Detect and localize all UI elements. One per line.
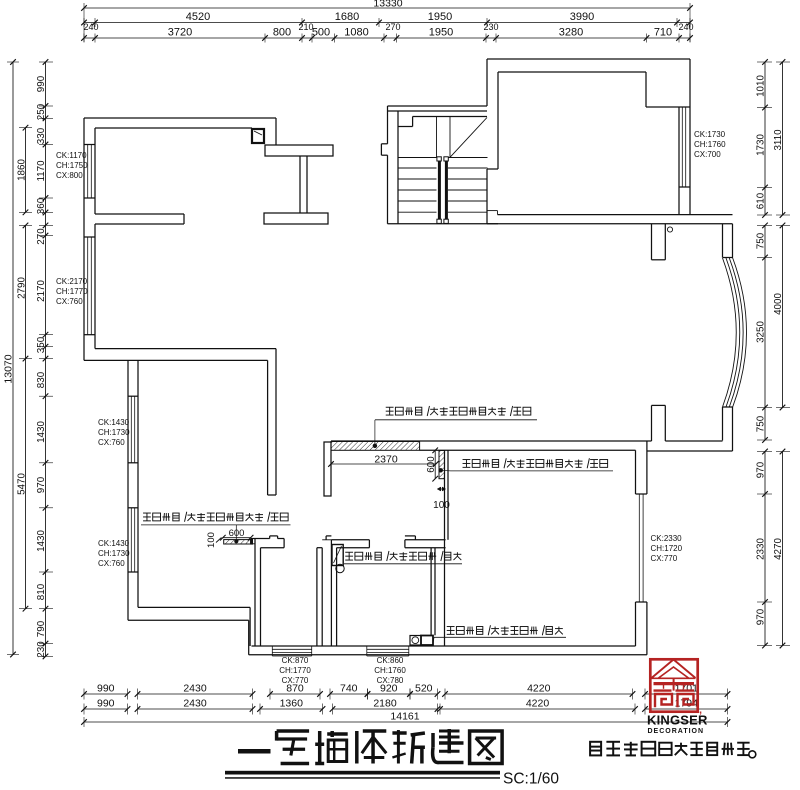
svg-text:CH:1750: CH:1750 [56, 161, 88, 170]
svg-text:1010: 1010 [756, 75, 767, 97]
svg-text:270: 270 [36, 228, 47, 245]
svg-text:800: 800 [273, 27, 291, 39]
svg-text:CK:2330: CK:2330 [651, 534, 683, 543]
svg-text:1170: 1170 [36, 160, 47, 182]
svg-text:810: 810 [36, 583, 47, 600]
svg-text:500: 500 [312, 27, 330, 39]
svg-text:4220: 4220 [526, 698, 550, 710]
svg-text:CK:2170: CK:2170 [56, 277, 88, 286]
svg-text:970: 970 [756, 461, 767, 478]
svg-text:3250: 3250 [756, 321, 767, 343]
svg-text:1360: 1360 [280, 698, 304, 710]
svg-text:1680: 1680 [335, 11, 359, 23]
svg-text:990: 990 [97, 683, 115, 695]
svg-text:CK:1430: CK:1430 [98, 539, 130, 548]
svg-text:230: 230 [36, 641, 47, 658]
svg-text:710: 710 [654, 27, 672, 39]
svg-text:2430: 2430 [183, 698, 207, 710]
svg-text:600: 600 [426, 456, 437, 473]
svg-text:CX:770: CX:770 [651, 554, 678, 563]
svg-text:CK:860: CK:860 [377, 656, 404, 665]
svg-text:990: 990 [36, 75, 47, 92]
svg-text:4000: 4000 [773, 293, 784, 315]
svg-text:1860: 1860 [17, 159, 28, 181]
svg-text:2170: 2170 [36, 280, 47, 302]
svg-text:2370: 2370 [374, 454, 398, 466]
svg-text:4220: 4220 [527, 683, 551, 695]
svg-text:2430: 2430 [183, 683, 207, 695]
svg-text:CH:1760: CH:1760 [374, 666, 406, 675]
svg-text:CK:1430: CK:1430 [98, 418, 130, 427]
svg-text:100: 100 [206, 532, 217, 548]
svg-text:14161: 14161 [390, 711, 419, 723]
svg-text:3990: 3990 [570, 11, 594, 23]
svg-text:CX:760: CX:760 [98, 438, 125, 447]
svg-text:CK:870: CK:870 [282, 656, 309, 665]
svg-text:360: 360 [36, 197, 47, 214]
svg-text:2180: 2180 [373, 698, 397, 710]
svg-text:990: 990 [97, 698, 115, 710]
svg-text:790: 790 [36, 620, 47, 637]
svg-text:CX:780: CX:780 [377, 676, 404, 685]
svg-text:’: ’ [699, 710, 702, 722]
svg-text:970: 970 [36, 476, 47, 493]
svg-text:2790: 2790 [17, 277, 28, 299]
svg-text:4520: 4520 [186, 11, 210, 23]
svg-text:CX:760: CX:760 [98, 559, 125, 568]
svg-text:240: 240 [83, 22, 98, 32]
svg-text:DECORATION: DECORATION [648, 728, 705, 735]
svg-text:1080: 1080 [344, 27, 368, 39]
svg-text:740: 740 [340, 683, 358, 695]
svg-text:CX:800: CX:800 [56, 171, 83, 180]
svg-text:250: 250 [36, 103, 47, 120]
svg-text:1430: 1430 [36, 421, 47, 443]
svg-text:CH:1770: CH:1770 [56, 287, 88, 296]
svg-text:270: 270 [385, 22, 400, 32]
svg-text:13070: 13070 [3, 354, 15, 383]
svg-text:SC:1/60: SC:1/60 [503, 771, 559, 788]
svg-text:230: 230 [483, 22, 498, 32]
svg-text:610: 610 [756, 192, 767, 209]
svg-text:CH:1760: CH:1760 [694, 140, 726, 149]
svg-text:520: 520 [415, 683, 433, 695]
svg-text:750: 750 [756, 232, 767, 249]
svg-text:1730: 1730 [756, 134, 767, 156]
svg-text:CH:1720: CH:1720 [651, 544, 683, 553]
svg-text:1950: 1950 [428, 11, 452, 23]
svg-text:1430: 1430 [36, 530, 47, 552]
svg-text:4270: 4270 [773, 538, 784, 560]
svg-text:2330: 2330 [756, 538, 767, 560]
svg-text:350: 350 [36, 336, 47, 353]
svg-text:CX:770: CX:770 [282, 676, 309, 685]
svg-text:750: 750 [756, 415, 767, 432]
svg-text:3280: 3280 [559, 27, 583, 39]
svg-text:CH:1730: CH:1730 [98, 428, 130, 437]
svg-text:CH:1730: CH:1730 [98, 549, 130, 558]
svg-text:970: 970 [756, 608, 767, 625]
svg-text:330: 330 [36, 127, 47, 144]
svg-text:3720: 3720 [168, 27, 192, 39]
svg-text:CK:1170: CK:1170 [56, 151, 87, 160]
svg-text:5470: 5470 [17, 473, 28, 495]
svg-text:1950: 1950 [429, 27, 453, 39]
svg-text:CX:760: CX:760 [56, 297, 83, 306]
svg-text:CX:700: CX:700 [694, 150, 721, 159]
svg-text:3110: 3110 [773, 129, 784, 151]
svg-text:13330: 13330 [373, 0, 402, 10]
svg-text:240: 240 [678, 22, 693, 32]
svg-text:CK:1730: CK:1730 [694, 130, 726, 139]
svg-text:CH:1770: CH:1770 [279, 666, 311, 675]
svg-text:830: 830 [36, 371, 47, 388]
